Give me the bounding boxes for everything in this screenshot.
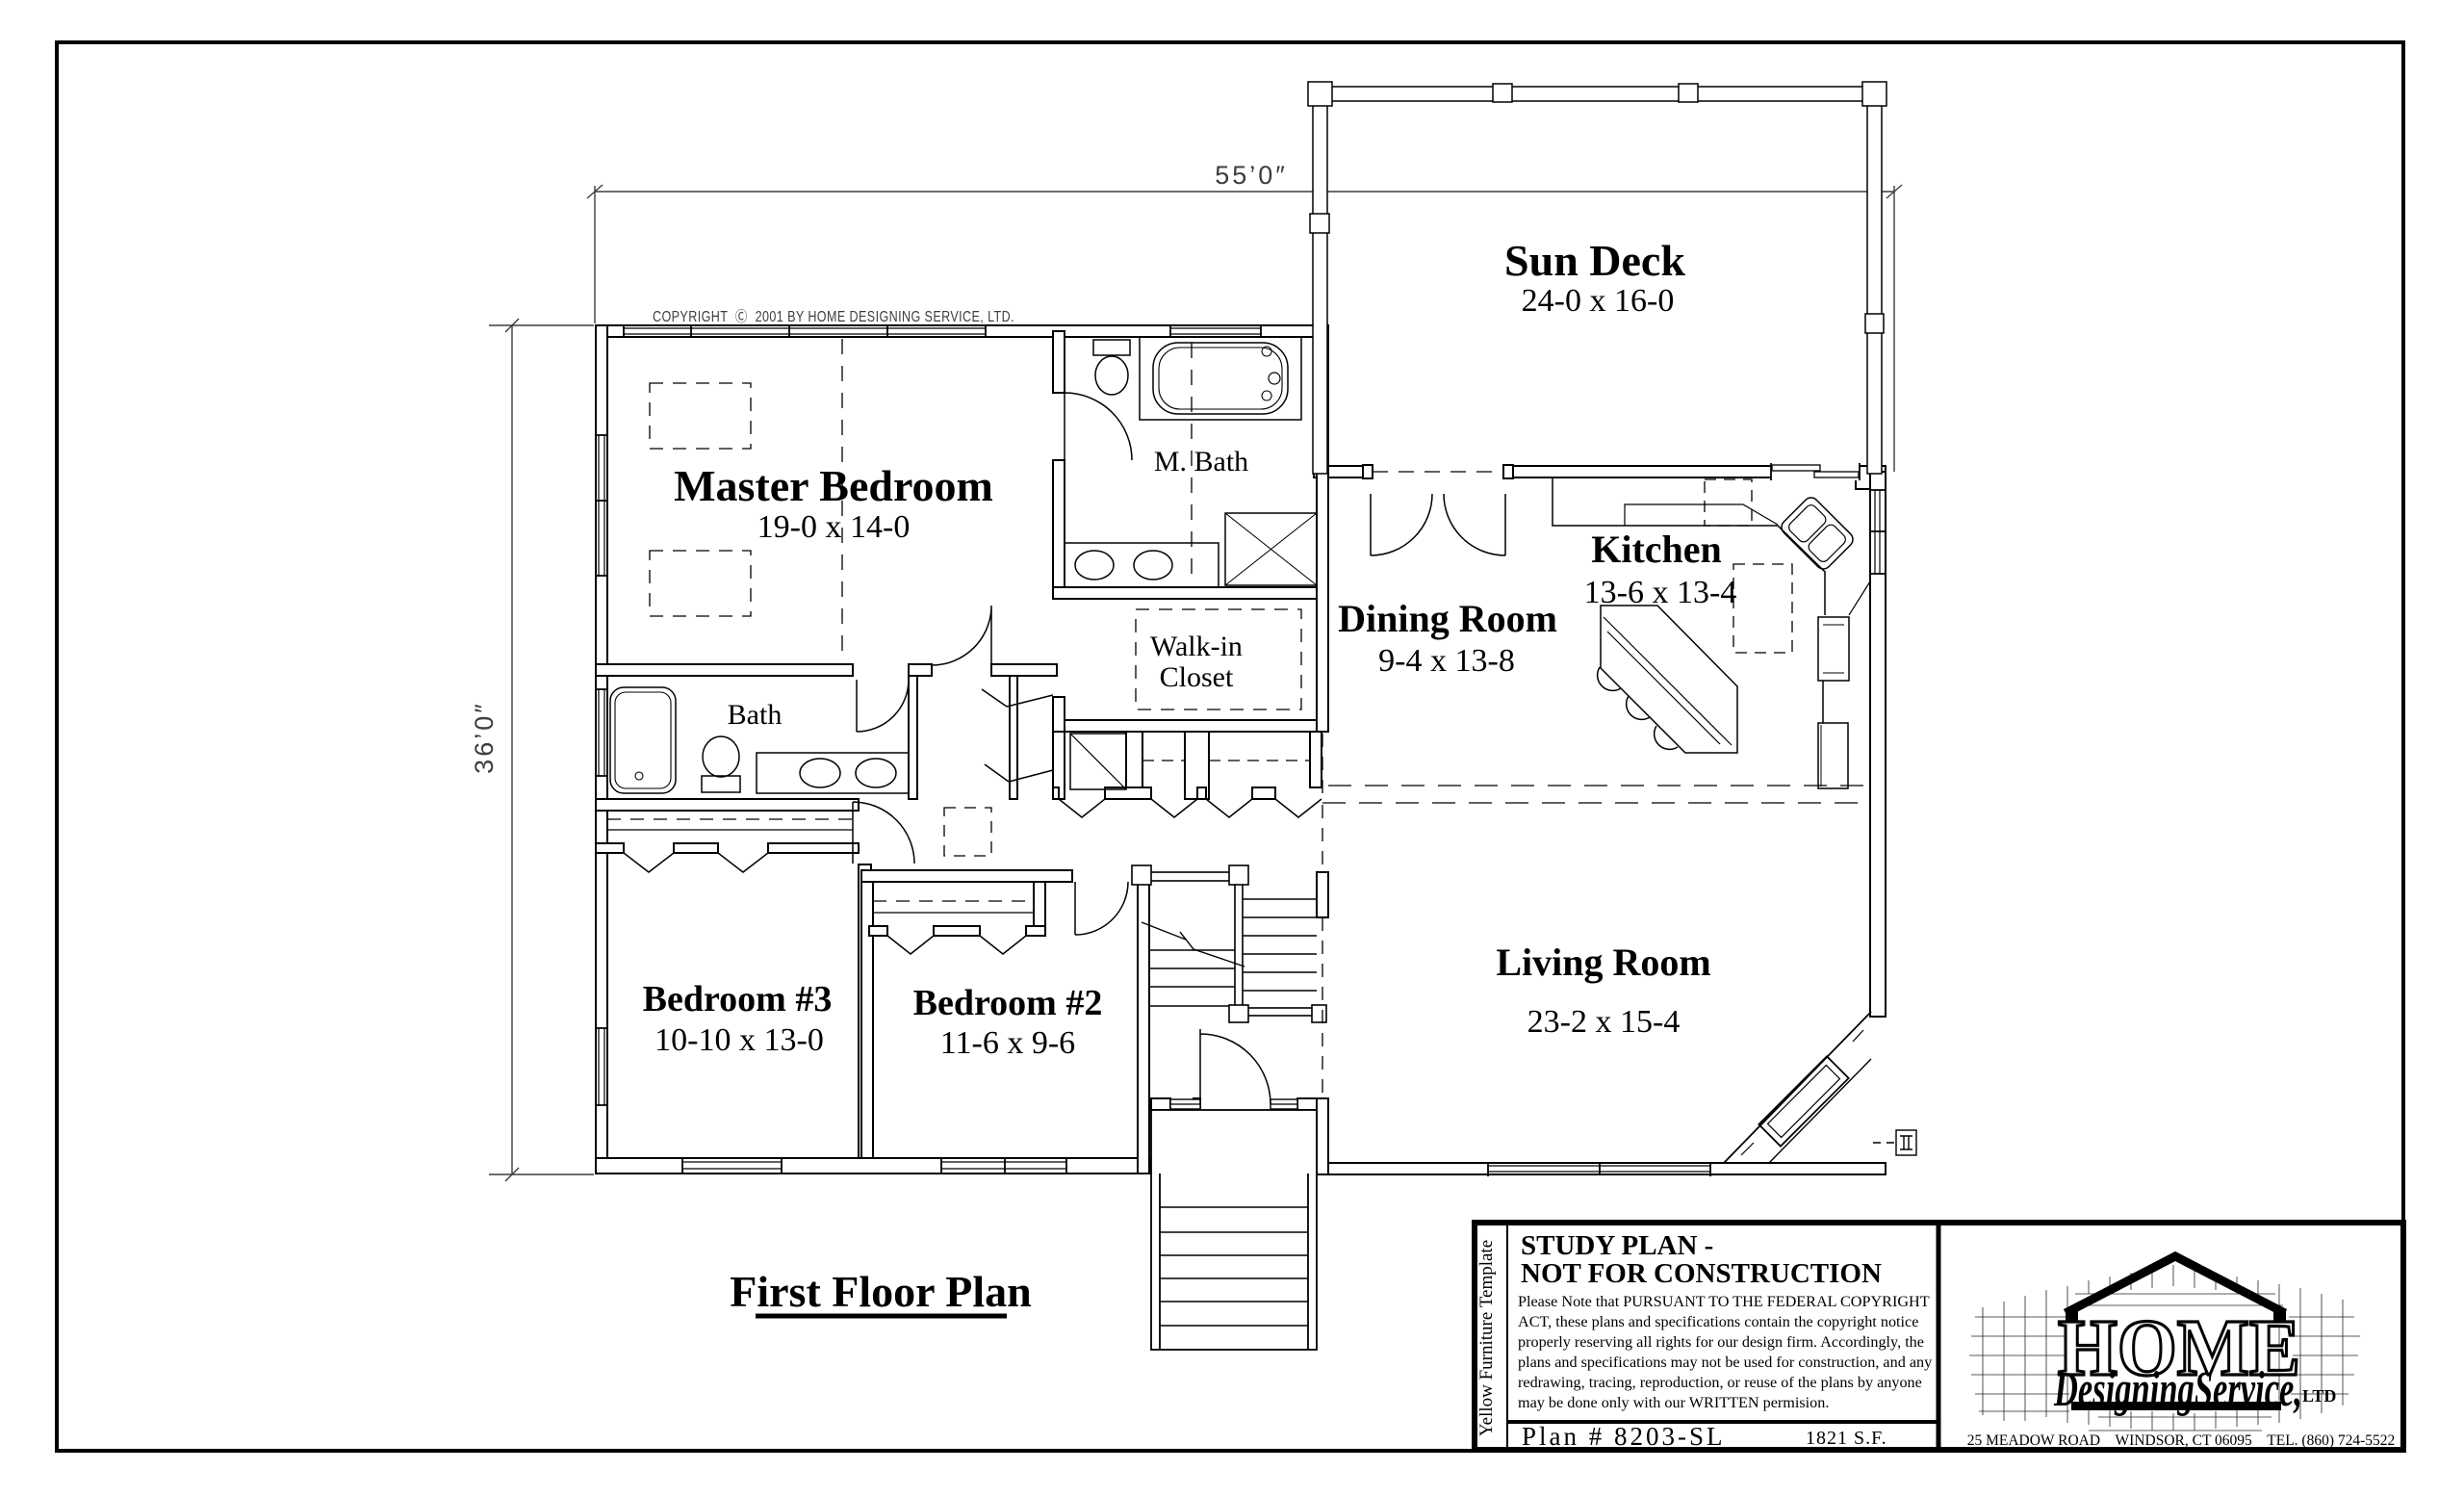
svg-text:COPYRIGHT Ⓒ 2001 BY HOME DES: COPYRIGHT Ⓒ 2001 BY HOME DESIGNING SERVI…	[653, 308, 1014, 325]
svg-text:Closet: Closet	[1160, 661, 1234, 693]
svg-text:Please Note that PURSUANT TO T: Please Note that PURSUANT TO THE FEDERAL…	[1518, 1293, 1930, 1310]
svg-text:ACT, these plans and specifica: ACT, these plans and specifications cont…	[1518, 1313, 1918, 1330]
svg-text:24-0 x 16-0: 24-0 x 16-0	[1522, 283, 1675, 319]
svg-text:plans and specifications may n: plans and specifications may not be used…	[1518, 1354, 1933, 1371]
svg-text:Dining Room: Dining Room	[1338, 597, 1557, 640]
svg-text:may be done only with our WRIT: may be done only with our WRITTEN permis…	[1518, 1394, 1829, 1411]
svg-text:First Floor Plan: First Floor Plan	[730, 1267, 1031, 1316]
svg-text:M. Bath: M. Bath	[1154, 446, 1248, 477]
svg-text:NOT FOR CONSTRUCTION: NOT FOR CONSTRUCTION	[1521, 1258, 1882, 1289]
svg-text:Plan # 8203-SL: Plan # 8203-SL	[1522, 1422, 1726, 1451]
svg-text:36’0″: 36’0″	[470, 701, 499, 774]
svg-text:properly reserving all rights: properly reserving all rights for our de…	[1518, 1333, 1924, 1351]
svg-text:25 MEADOW ROAD WINDSOR, CT: 25 MEADOW ROAD WINDSOR, CT 06095 TEL. (8…	[1967, 1432, 2396, 1449]
svg-text:11-6 x 9-6: 11-6 x 9-6	[940, 1025, 1075, 1061]
svg-text:Yellow Furniture Template: Yellow Furniture Template	[1476, 1240, 1497, 1436]
svg-text:Bath: Bath	[728, 699, 783, 731]
svg-text:23-2 x 15-4: 23-2 x 15-4	[1527, 1004, 1681, 1040]
svg-text:13-6 x 13-4: 13-6 x 13-4	[1584, 575, 1737, 610]
svg-text:10-10 x 13-0: 10-10 x 13-0	[654, 1022, 824, 1058]
svg-text:Sun Deck: Sun Deck	[1504, 236, 1685, 285]
svg-text:19-0 x 14-0: 19-0 x 14-0	[757, 509, 911, 545]
svg-text:STUDY PLAN -: STUDY PLAN -	[1521, 1230, 1713, 1261]
svg-text:LTD: LTD	[2302, 1386, 2336, 1406]
svg-text:Bedroom #3: Bedroom #3	[643, 979, 833, 1019]
svg-text:Living Room: Living Room	[1496, 941, 1710, 984]
svg-text:55’0″: 55’0″	[1215, 161, 1288, 190]
svg-text:Bedroom #2: Bedroom #2	[913, 983, 1103, 1023]
svg-text:Walk-in: Walk-in	[1150, 631, 1243, 662]
svg-text:DesigningService,: DesigningService,	[2053, 1362, 2302, 1417]
svg-text:Kitchen: Kitchen	[1591, 528, 1722, 571]
svg-text:redrawing, tracing, reproducti: redrawing, tracing, reproduction, or reu…	[1518, 1374, 1922, 1391]
svg-text:1821 S.F.: 1821 S.F.	[1806, 1428, 1887, 1449]
svg-text:9-4 x 13-8: 9-4 x 13-8	[1378, 643, 1515, 679]
svg-text:Master Bedroom: Master Bedroom	[674, 461, 993, 510]
